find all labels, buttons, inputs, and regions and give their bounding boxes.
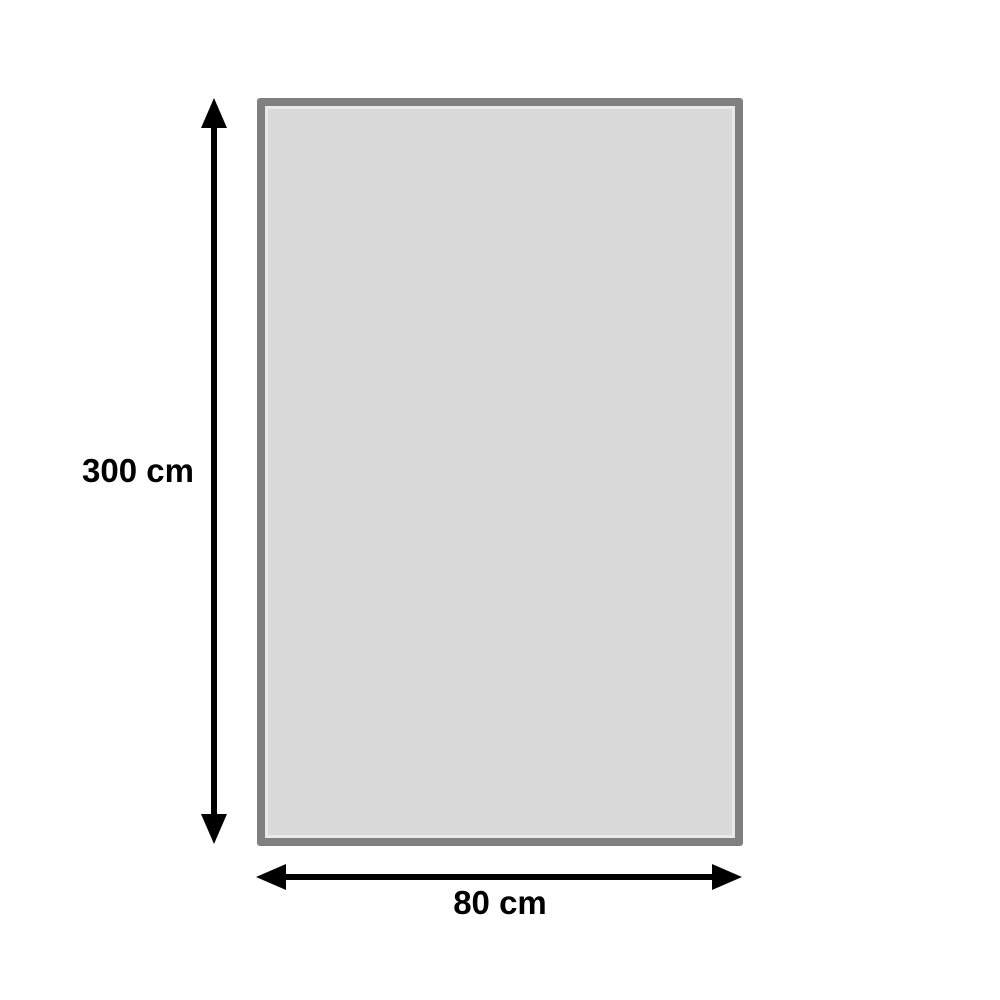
height-dimension-label: 300 cm [38,452,238,490]
measured-rectangle [257,98,743,846]
width-dimension-label: 80 cm [400,884,600,922]
dimension-diagram-canvas: 300 cm 80 cm [0,0,1000,1000]
width-arrow-head-left [256,864,286,890]
height-arrow-head-top [201,98,227,128]
height-arrow-head-bottom [201,814,227,844]
width-arrow-head-right [712,864,742,890]
